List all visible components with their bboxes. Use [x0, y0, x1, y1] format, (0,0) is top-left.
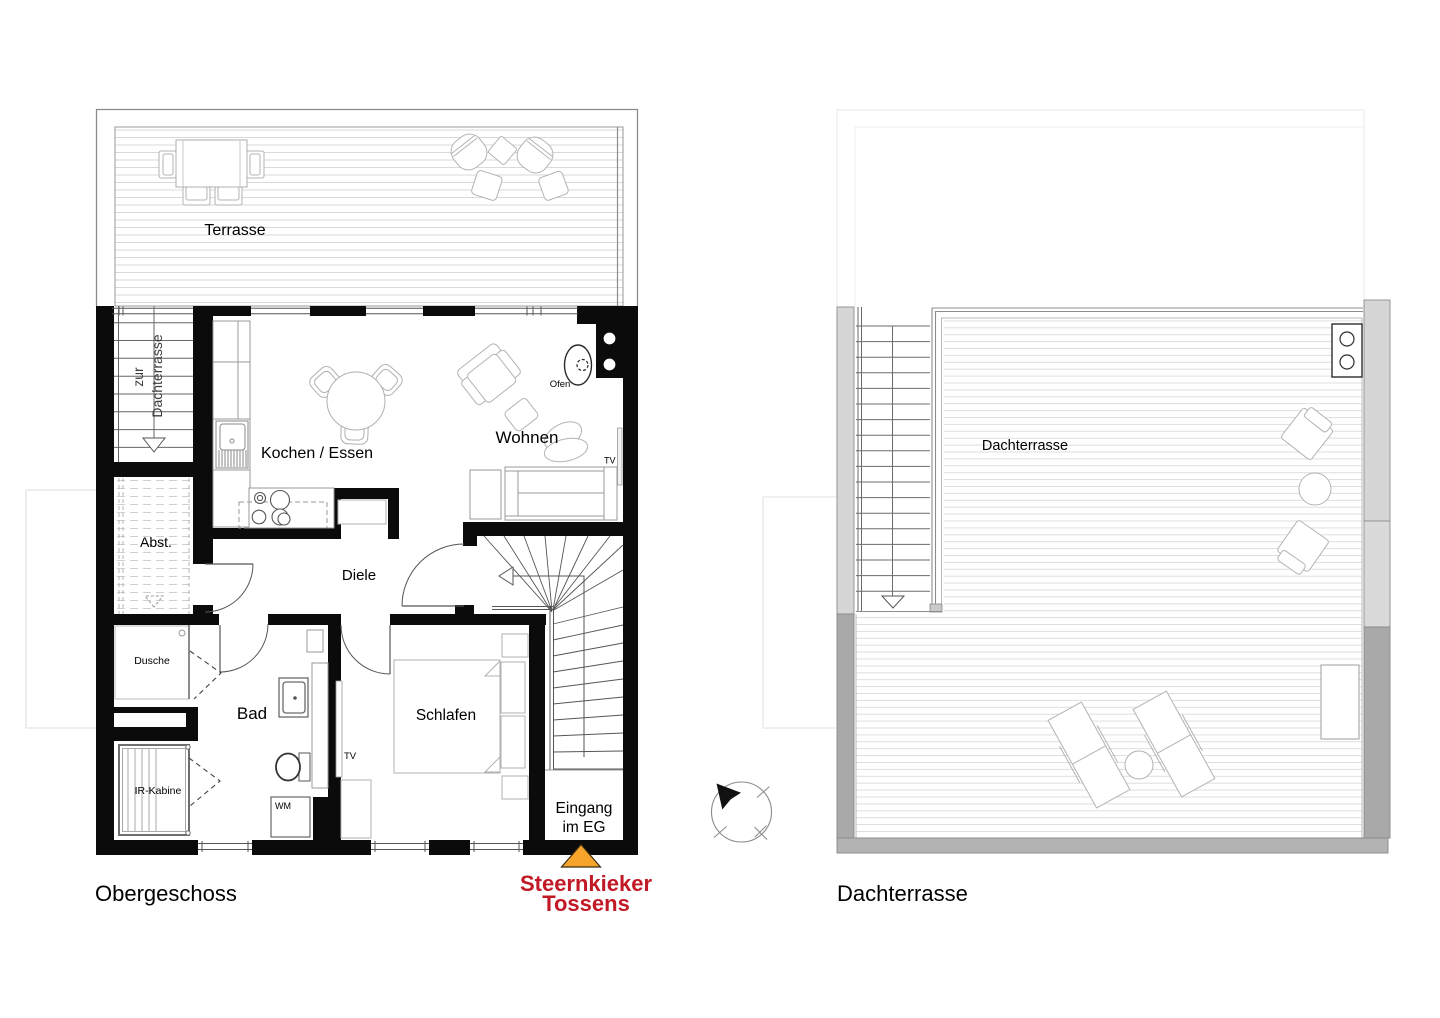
svg-text:Eingang: Eingang — [556, 800, 613, 817]
svg-text:Schlafen: Schlafen — [416, 707, 476, 724]
svg-text:Dachterrasse: Dachterrasse — [982, 438, 1068, 454]
svg-text:Kochen / Essen: Kochen / Essen — [261, 445, 373, 462]
svg-text:TV: TV — [344, 751, 357, 762]
svg-text:Dachterrasse: Dachterrasse — [837, 881, 968, 906]
svg-text:IR-Kabine: IR-Kabine — [135, 785, 182, 797]
svg-text:TV: TV — [604, 456, 616, 466]
svg-text:Bad: Bad — [237, 704, 267, 723]
svg-text:Dachterrasse: Dachterrasse — [149, 334, 165, 417]
svg-text:Obergeschoss: Obergeschoss — [95, 881, 237, 906]
svg-text:Diele: Diele — [342, 567, 376, 584]
svg-text:zur: zur — [130, 367, 146, 387]
svg-text:WM: WM — [275, 801, 291, 811]
svg-text:Ofen: Ofen — [550, 379, 571, 390]
svg-text:Abst.: Abst. — [140, 534, 172, 550]
svg-text:Terrasse: Terrasse — [204, 222, 265, 239]
svg-text:Dusche: Dusche — [134, 655, 170, 667]
svg-text:Tossens: Tossens — [542, 891, 630, 916]
svg-text:im EG: im EG — [562, 819, 605, 836]
svg-text:Wohnen: Wohnen — [495, 428, 558, 447]
